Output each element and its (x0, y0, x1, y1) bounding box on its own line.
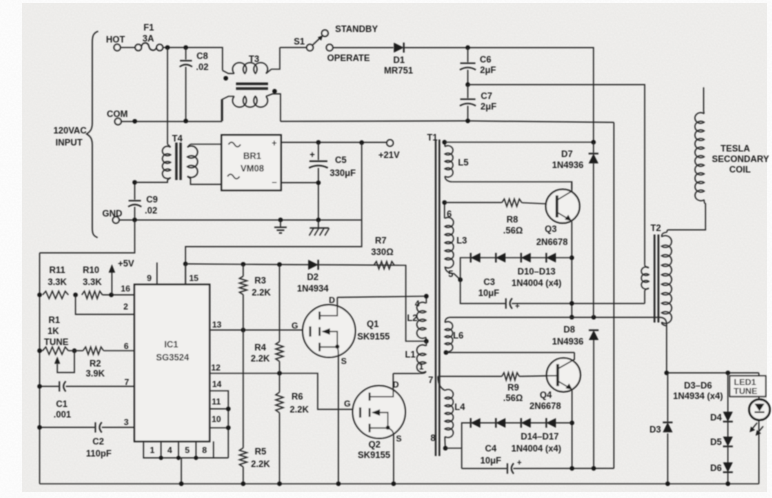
svg-text:Q4: Q4 (540, 390, 552, 400)
svg-text:D8: D8 (564, 324, 576, 334)
svg-text:D10–D13: D10–D13 (517, 266, 555, 276)
svg-text:SG3524: SG3524 (156, 352, 189, 362)
svg-text:4: 4 (167, 445, 172, 455)
svg-text:R3: R3 (255, 275, 267, 285)
svg-text:.56Ω: .56Ω (503, 393, 523, 403)
svg-text:13: 13 (212, 319, 222, 329)
svg-text:C6: C6 (480, 54, 492, 64)
svg-text:D5: D5 (710, 437, 722, 447)
svg-text:SK9155: SK9155 (358, 450, 391, 460)
svg-text:IC1: IC1 (164, 339, 178, 349)
svg-text:C5: C5 (335, 155, 347, 165)
svg-text:1N4934: 1N4934 (297, 283, 329, 293)
svg-text:VM08: VM08 (241, 163, 265, 173)
svg-text:+5V: +5V (118, 258, 134, 268)
svg-text:2.2K: 2.2K (252, 287, 272, 297)
svg-text:2μF: 2μF (480, 65, 497, 75)
svg-text:110pF: 110pF (86, 448, 112, 458)
svg-text:COM: COM (107, 109, 128, 119)
svg-text:10μF: 10μF (480, 455, 502, 465)
svg-text:L2: L2 (407, 313, 418, 323)
svg-text:330μF: 330μF (330, 168, 357, 178)
svg-text:2N6678: 2N6678 (536, 237, 568, 247)
svg-text:+: + (515, 301, 520, 310)
svg-text:6: 6 (447, 209, 452, 219)
svg-text:C2: C2 (93, 436, 105, 446)
svg-text:5: 5 (448, 269, 453, 279)
svg-text:L1: L1 (405, 349, 416, 359)
svg-text:1N4936: 1N4936 (552, 160, 584, 170)
svg-text:INPUT: INPUT (56, 137, 84, 147)
svg-text:1K: 1K (48, 326, 60, 336)
svg-text:T1: T1 (427, 132, 438, 142)
svg-text:TESLA: TESLA (721, 143, 751, 153)
svg-text:R7: R7 (375, 235, 387, 245)
svg-text:1N4936: 1N4936 (552, 336, 584, 346)
svg-text:−: − (272, 178, 277, 188)
svg-text:C7: C7 (481, 91, 493, 101)
svg-text:Q1: Q1 (367, 319, 379, 329)
svg-text:S: S (396, 433, 402, 443)
svg-text:+: + (310, 149, 315, 159)
svg-text:F1: F1 (144, 23, 155, 33)
svg-text:6: 6 (124, 341, 129, 351)
svg-text:D: D (393, 379, 399, 389)
svg-text:3A: 3A (142, 33, 154, 43)
svg-text:9: 9 (147, 273, 152, 283)
svg-text:R9: R9 (508, 382, 520, 392)
svg-text:C4: C4 (485, 443, 497, 453)
svg-text:.001: .001 (54, 409, 72, 419)
svg-text:10μF: 10μF (478, 288, 500, 298)
svg-text:STANDBY: STANDBY (335, 24, 378, 34)
svg-text:R11: R11 (49, 265, 65, 275)
svg-text:2: 2 (123, 301, 128, 311)
svg-text:2.2K: 2.2K (290, 404, 310, 414)
svg-text:S1: S1 (294, 36, 305, 46)
svg-text:11: 11 (212, 396, 221, 406)
svg-text:COIL: COIL (729, 164, 751, 174)
svg-text:HOT: HOT (106, 34, 126, 44)
svg-text:R2: R2 (90, 358, 102, 368)
svg-text:5: 5 (185, 445, 190, 455)
svg-text:330Ω: 330Ω (371, 247, 393, 257)
svg-text:16: 16 (121, 283, 131, 293)
svg-text:3.9K: 3.9K (86, 369, 106, 379)
svg-text:R8: R8 (507, 214, 519, 224)
svg-text:SECONDARY: SECONDARY (712, 154, 769, 164)
svg-text:2.2K: 2.2K (251, 459, 271, 469)
svg-text:T3: T3 (249, 54, 260, 64)
svg-text:R6: R6 (292, 391, 304, 401)
svg-text:3: 3 (124, 417, 129, 427)
svg-text:R1: R1 (49, 315, 61, 325)
svg-text:1N4934 (x4): 1N4934 (x4) (673, 391, 723, 401)
svg-text:7: 7 (124, 377, 129, 387)
svg-text:L5: L5 (458, 157, 469, 167)
svg-text:L4: L4 (455, 402, 466, 412)
svg-text:MR751: MR751 (384, 66, 413, 76)
svg-text:D1: D1 (393, 55, 405, 65)
svg-text:D2: D2 (307, 272, 319, 282)
svg-text:1: 1 (419, 361, 424, 371)
svg-text:D4: D4 (710, 412, 722, 422)
svg-text:BR1: BR1 (243, 151, 261, 161)
svg-text:T2: T2 (651, 223, 662, 233)
svg-text:Q2: Q2 (368, 439, 380, 449)
svg-text:3.3K: 3.3K (83, 277, 103, 287)
svg-text:7: 7 (428, 375, 433, 385)
svg-text:2μF: 2μF (480, 102, 497, 112)
svg-text:10: 10 (212, 414, 222, 424)
svg-text:1: 1 (150, 445, 155, 455)
svg-text:R5: R5 (255, 446, 267, 456)
svg-text:T4: T4 (172, 133, 183, 143)
svg-text:C3: C3 (484, 277, 496, 287)
svg-text:8: 8 (202, 445, 207, 455)
svg-text:L3: L3 (457, 235, 468, 245)
svg-text:D3: D3 (650, 424, 662, 434)
svg-text:C1: C1 (56, 399, 68, 409)
svg-text:R4: R4 (255, 342, 267, 352)
svg-text:3.3K: 3.3K (48, 277, 68, 287)
svg-text:1N4004 (x4): 1N4004 (x4) (511, 278, 561, 288)
svg-text:2N6678: 2N6678 (530, 401, 562, 411)
svg-text:.02: .02 (196, 62, 209, 72)
svg-text:C9: C9 (146, 195, 158, 205)
svg-text:SK9155: SK9155 (357, 331, 390, 341)
svg-text:.56Ω: .56Ω (503, 225, 523, 235)
svg-text:G: G (291, 320, 298, 330)
svg-text:+: + (517, 458, 522, 467)
svg-text:OPERATE: OPERATE (327, 53, 370, 63)
svg-text:C8: C8 (197, 51, 209, 61)
svg-text:.02: .02 (145, 206, 158, 216)
svg-text:R10: R10 (83, 265, 100, 275)
svg-text:D3–D6: D3–D6 (684, 381, 712, 391)
svg-text:GND: GND (102, 208, 123, 218)
svg-text:15: 15 (189, 273, 199, 283)
svg-text:L6: L6 (453, 330, 464, 340)
svg-text:G: G (344, 398, 351, 408)
svg-text:D6: D6 (710, 463, 722, 473)
svg-text:+: + (272, 138, 277, 148)
svg-text:TUNE: TUNE (44, 337, 69, 347)
svg-text:TUNE: TUNE (734, 386, 758, 396)
svg-text:1N4004 (x4): 1N4004 (x4) (511, 443, 561, 453)
svg-text:Q3: Q3 (545, 224, 557, 234)
svg-text:D7: D7 (561, 149, 573, 159)
svg-text:D14–D17: D14–D17 (521, 431, 559, 441)
svg-text:8: 8 (430, 433, 435, 443)
svg-text:120VAC: 120VAC (53, 126, 87, 136)
svg-text:4: 4 (415, 298, 420, 308)
svg-text:2.2K: 2.2K (251, 353, 271, 363)
svg-text:14: 14 (212, 379, 222, 389)
svg-text:+21V: +21V (378, 150, 399, 160)
svg-text:D: D (329, 295, 335, 305)
svg-text:12: 12 (211, 362, 221, 372)
svg-text:S: S (341, 356, 347, 366)
